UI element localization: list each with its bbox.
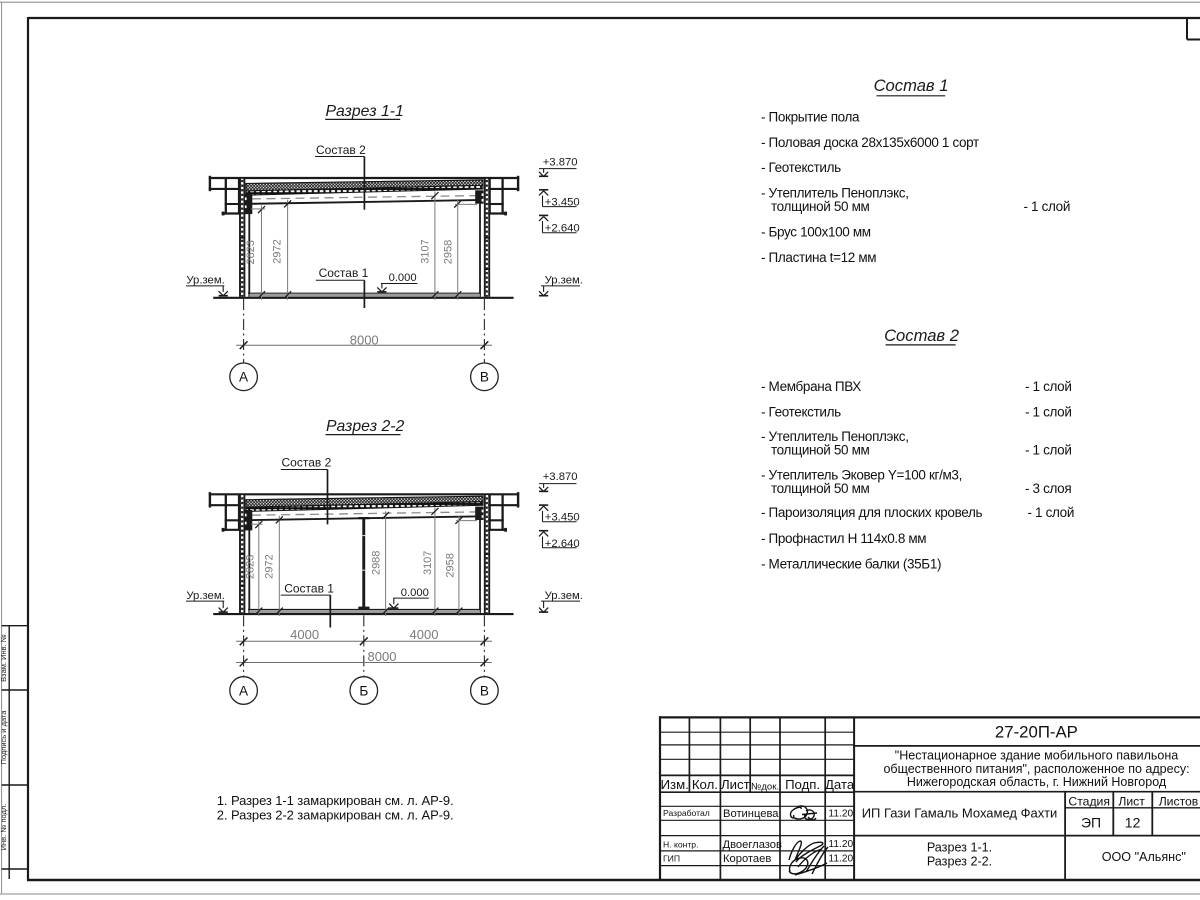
svg-text:Нижегородская область, г. Нижн: Нижегородская область, г. Нижний Новгоро… [907,775,1167,789]
svg-text:12: 12 [1125,814,1141,830]
svg-text:2958: 2958 [444,553,456,577]
svg-text:+2.640: +2.640 [545,223,580,235]
svg-text:Лист: Лист [1118,794,1145,808]
svg-text:Б: Б [359,683,368,698]
svg-text:Вотинцева: Вотинцева [723,808,779,820]
svg-text:Состав 2: Состав 2 [884,326,959,345]
svg-text:- Покрытие пола: - Покрытие пола [761,110,860,125]
svg-text:- Мембрана ПВХ: - Мембрана ПВХ [761,379,861,394]
svg-text:В: В [480,370,489,385]
svg-text:Инв. № подл.: Инв. № подл. [0,804,8,851]
svg-text:Разрез 1-1: Разрез 1-1 [326,103,404,120]
svg-text:Ур.зем.: Ур.зем. [186,590,224,602]
svg-text:Ур.зем.: Ур.зем. [545,275,583,287]
svg-text:Ур.зем.: Ур.зем. [186,275,224,287]
svg-text:Состав 2: Состав 2 [282,456,332,470]
svg-text:2972: 2972 [272,239,284,263]
svg-text:общественного питания", распол: общественного питания", расположенное по… [883,762,1189,776]
svg-text:11.20: 11.20 [828,854,853,865]
svg-text:В: В [480,683,489,698]
svg-text:"Нестационарное здание мобильн: "Нестационарное здание мобильного павиль… [895,748,1178,762]
svg-text:Разрез 2-2.: Разрез 2-2. [927,855,992,869]
svg-text:А: А [239,683,249,698]
svg-text:- Геотекстиль: - Геотекстиль [761,404,841,419]
svg-text:2972: 2972 [264,554,276,578]
svg-text:+2.640: +2.640 [545,538,580,550]
svg-text:Стадия: Стадия [1068,794,1110,808]
svg-text:- 1 слой: - 1 слой [1025,443,1072,458]
svg-text:- Пароизоляция для плоских кро: - Пароизоляция для плоских кровель [761,505,982,520]
svg-text:ИП Гази Гамаль Мохамед Фахти: ИП Гази Гамаль Мохамед Фахти [862,806,1058,821]
svg-text:1. Разрез 1-1 замаркирован см.: 1. Разрез 1-1 замаркирован см. л. АР-9. [217,793,454,808]
svg-text:Коротаев: Коротаев [723,853,771,865]
svg-text:+3.870: +3.870 [543,471,578,483]
svg-text:толщиной 50 мм: толщиной 50 мм [771,443,870,458]
svg-text:Подп.: Подп. [785,777,820,792]
svg-text:0.000: 0.000 [389,272,417,284]
svg-text:Лист: Лист [721,777,750,792]
svg-text:Дата: Дата [825,777,855,792]
svg-text:Взам. Инв. №: Взам. Инв. № [0,634,8,682]
svg-text:- 3 слоя: - 3 слоя [1025,481,1071,496]
svg-text:3107: 3107 [422,551,434,575]
svg-text:2. Разрез 2-2 замаркирован см.: 2. Разрез 2-2 замаркирован см. л. АР-9. [217,807,454,822]
svg-text:Состав 1: Состав 1 [319,266,369,280]
svg-text:Двоеглазов: Двоеглазов [723,839,783,851]
svg-text:- Половая доска 28х135х6000 1: - Половая доска 28х135х6000 1 сорт [761,135,979,150]
svg-text:Листов: Листов [1159,794,1199,808]
svg-text:+3.450: +3.450 [545,512,580,524]
svg-text:+3.450: +3.450 [545,197,580,209]
svg-text:Н. контр.: Н. контр. [663,839,698,849]
svg-text:Разрез 2-2: Разрез 2-2 [326,418,404,435]
svg-text:Состав 1: Состав 1 [284,582,334,596]
svg-text:ГИП: ГИП [663,854,680,864]
svg-text:№док.: №док. [751,782,779,793]
svg-text:0.000: 0.000 [401,587,429,599]
svg-text:8000: 8000 [350,332,379,347]
svg-text:11.20: 11.20 [828,809,853,820]
svg-text:толщиной 50 мм: толщиной 50 мм [771,481,870,496]
svg-text:Изм.: Изм. [661,777,689,792]
svg-text:- Профнастил Н 114х0.8 мм: - Профнастил Н 114х0.8 мм [761,531,926,546]
svg-text:11.20: 11.20 [828,839,853,850]
svg-text:- 1 слой: - 1 слой [1025,379,1072,394]
svg-text:2958: 2958 [442,240,454,264]
svg-text:27-20П-АР: 27-20П-АР [995,722,1078,741]
svg-text:Разрез 1-1.: Разрез 1-1. [927,841,992,855]
svg-text:Состав 1: Состав 1 [874,76,949,95]
svg-text:8000: 8000 [368,649,397,664]
svg-text:3107: 3107 [420,239,432,263]
svg-text:- Геотекстиль: - Геотекстиль [761,160,841,175]
svg-text:ЭП: ЭП [1081,814,1101,830]
svg-text:- 1 слой: - 1 слой [1025,404,1072,419]
svg-text:4000: 4000 [290,627,319,642]
svg-text:толщиной 50 мм: толщиной 50 мм [771,199,870,214]
svg-text:- 1 слой: - 1 слой [1024,199,1071,214]
svg-text:2988: 2988 [370,551,382,575]
svg-text:Ур.зем.: Ур.зем. [545,590,583,602]
svg-text:Разработал: Разработал [663,808,710,818]
svg-text:Кол.: Кол. [692,777,718,792]
svg-text:2823: 2823 [245,555,257,579]
svg-text:2823: 2823 [245,240,257,264]
svg-text:- Брус 100х100 мм: - Брус 100х100 мм [761,224,871,239]
svg-text:- 1 слой: - 1 слой [1028,505,1075,520]
svg-text:- Металлические балки (35Б1): - Металлические балки (35Б1) [761,557,941,572]
svg-text:+3.870: +3.870 [543,156,578,168]
svg-text:- Пластина t=12 мм: - Пластина t=12 мм [761,250,876,265]
svg-text:ООО "Альянс": ООО "Альянс" [1102,850,1186,864]
svg-text:А: А [239,370,249,385]
svg-text:Подпись и дата: Подпись и дата [0,710,8,765]
svg-text:Состав 2: Состав 2 [316,143,366,157]
svg-text:4000: 4000 [410,627,439,642]
